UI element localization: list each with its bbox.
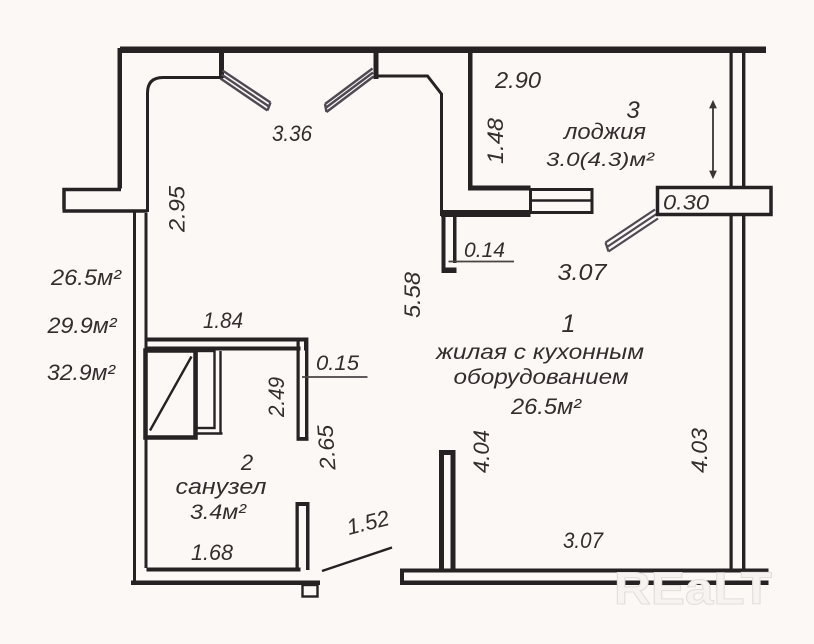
svg-text:санузел: санузел	[176, 474, 267, 499]
svg-text:4.03: 4.03	[687, 427, 712, 473]
svg-text:3.36: 3.36	[272, 121, 313, 146]
svg-text:0.14: 0.14	[464, 239, 505, 262]
svg-text:REaLT: REaLT	[614, 563, 772, 614]
svg-text:3.07: 3.07	[558, 259, 608, 285]
svg-text:3.4м²: 3.4м²	[190, 501, 247, 524]
svg-text:5.58: 5.58	[400, 271, 425, 318]
svg-text:1.48: 1.48	[483, 117, 508, 164]
svg-text:26.5м²: 26.5м²	[50, 265, 122, 290]
svg-text:1.84: 1.84	[203, 308, 243, 333]
svg-text:1.68: 1.68	[191, 540, 234, 565]
svg-text:0.15: 0.15	[316, 352, 359, 375]
svg-text:3.0(4.3)м²: 3.0(4.3)м²	[546, 149, 656, 171]
svg-text:2: 2	[240, 450, 253, 475]
svg-text:2.65: 2.65	[312, 423, 340, 471]
svg-text:жилая с кухонным: жилая с кухонным	[435, 340, 644, 364]
svg-text:26.5м²: 26.5м²	[510, 394, 582, 419]
svg-text:4.04: 4.04	[469, 430, 494, 473]
svg-text:3.07: 3.07	[563, 528, 604, 553]
svg-text:2.95: 2.95	[165, 185, 190, 233]
svg-text:2.90: 2.90	[494, 67, 541, 93]
svg-text:1: 1	[562, 310, 576, 338]
svg-text:29.9м²: 29.9м²	[46, 313, 117, 338]
svg-text:2.49: 2.49	[264, 377, 289, 418]
svg-text:лоджия: лоджия	[562, 119, 646, 144]
svg-text:0.30: 0.30	[663, 192, 709, 215]
svg-text:32.9м²: 32.9м²	[47, 360, 116, 385]
svg-text:оборудованием: оборудованием	[454, 365, 629, 389]
svg-text:1.52: 1.52	[344, 505, 392, 540]
